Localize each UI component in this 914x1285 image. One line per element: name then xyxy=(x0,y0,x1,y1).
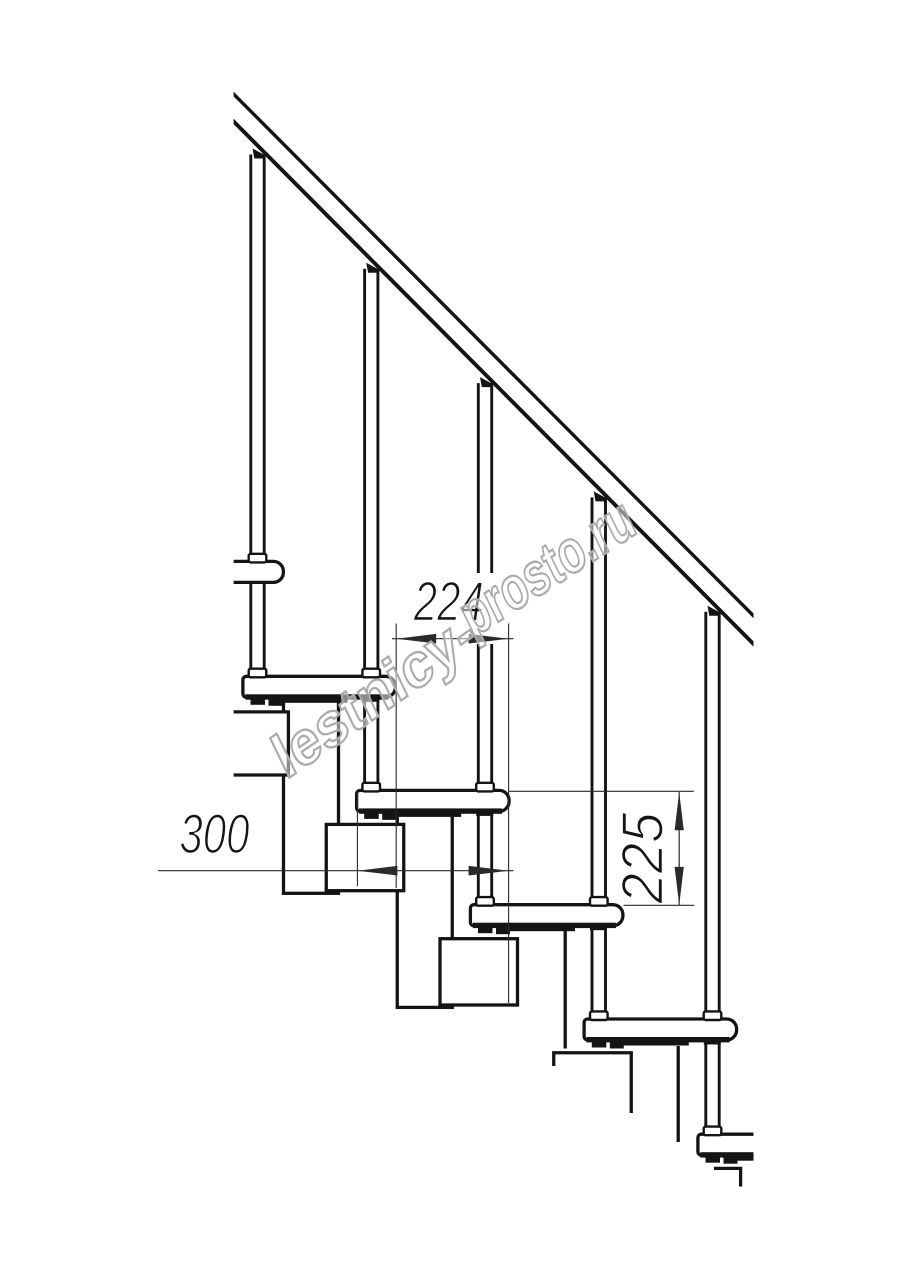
svg-text:300: 300 xyxy=(179,803,249,865)
svg-text:225: 225 xyxy=(610,812,675,905)
